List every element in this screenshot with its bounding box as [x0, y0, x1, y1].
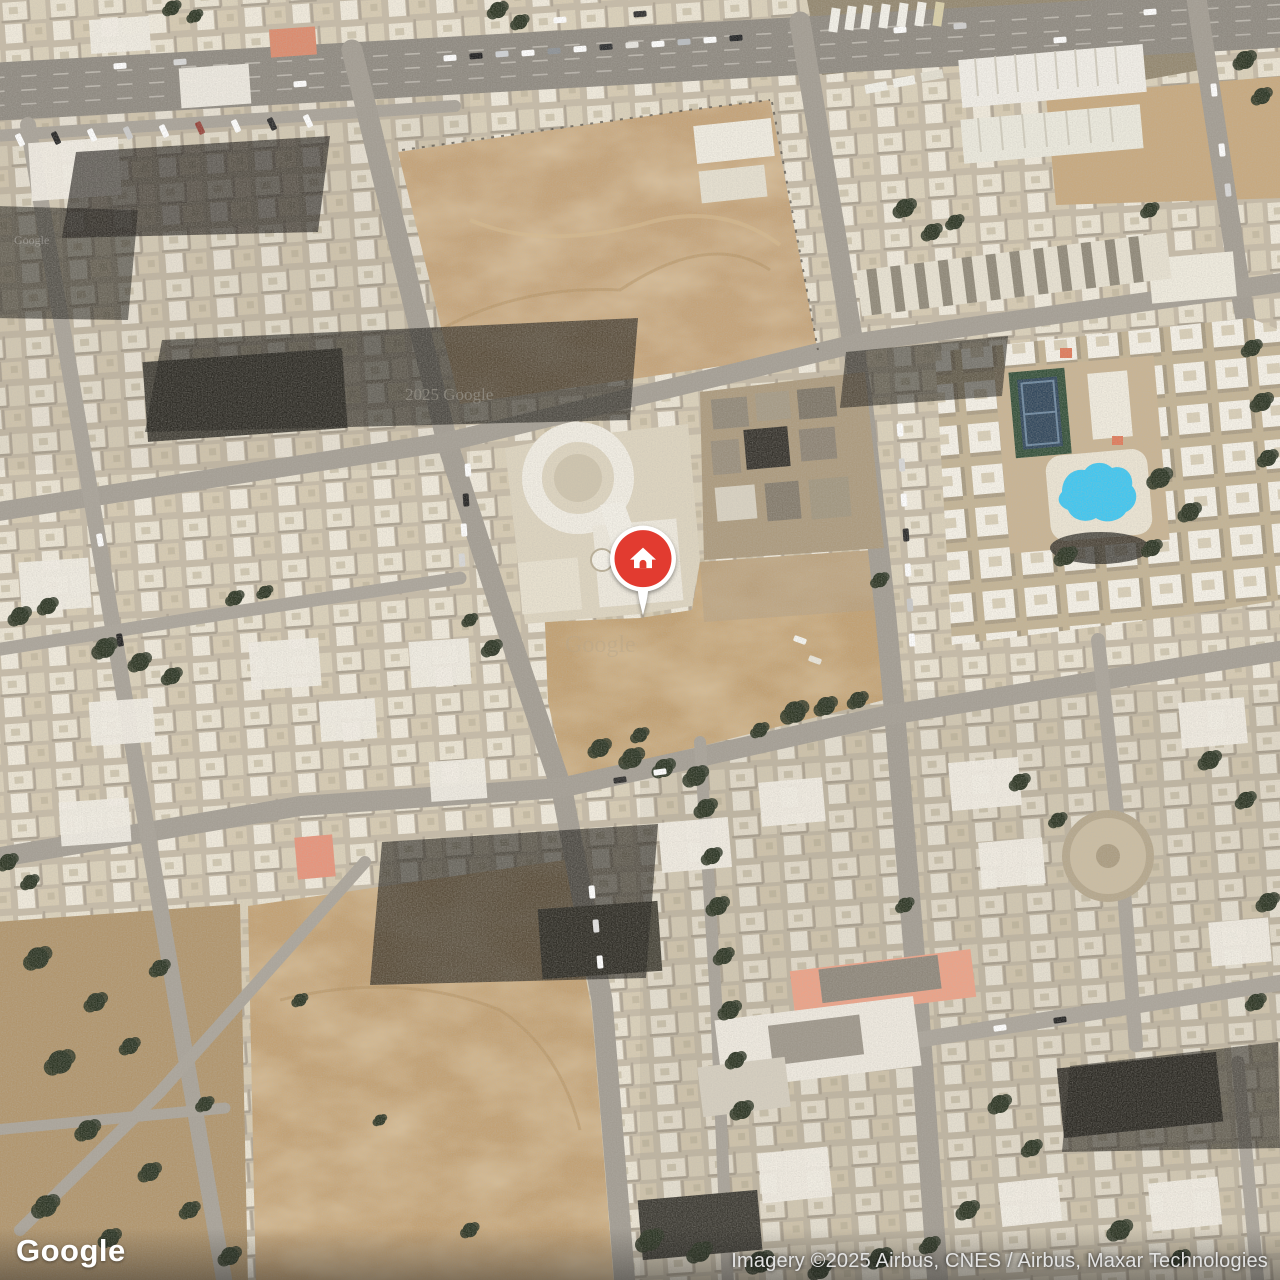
- map-canvas[interactable]: 2025 Google Google Google Google Imagery…: [0, 0, 1280, 1280]
- place-marker[interactable]: [605, 521, 681, 649]
- home-icon-door: [640, 560, 647, 568]
- google-logo[interactable]: Google: [16, 1235, 126, 1266]
- imagery-attribution: Imagery ©2025 Airbus, CNES / Airbus, Max…: [731, 1249, 1268, 1273]
- place-marker-pin: [605, 521, 681, 649]
